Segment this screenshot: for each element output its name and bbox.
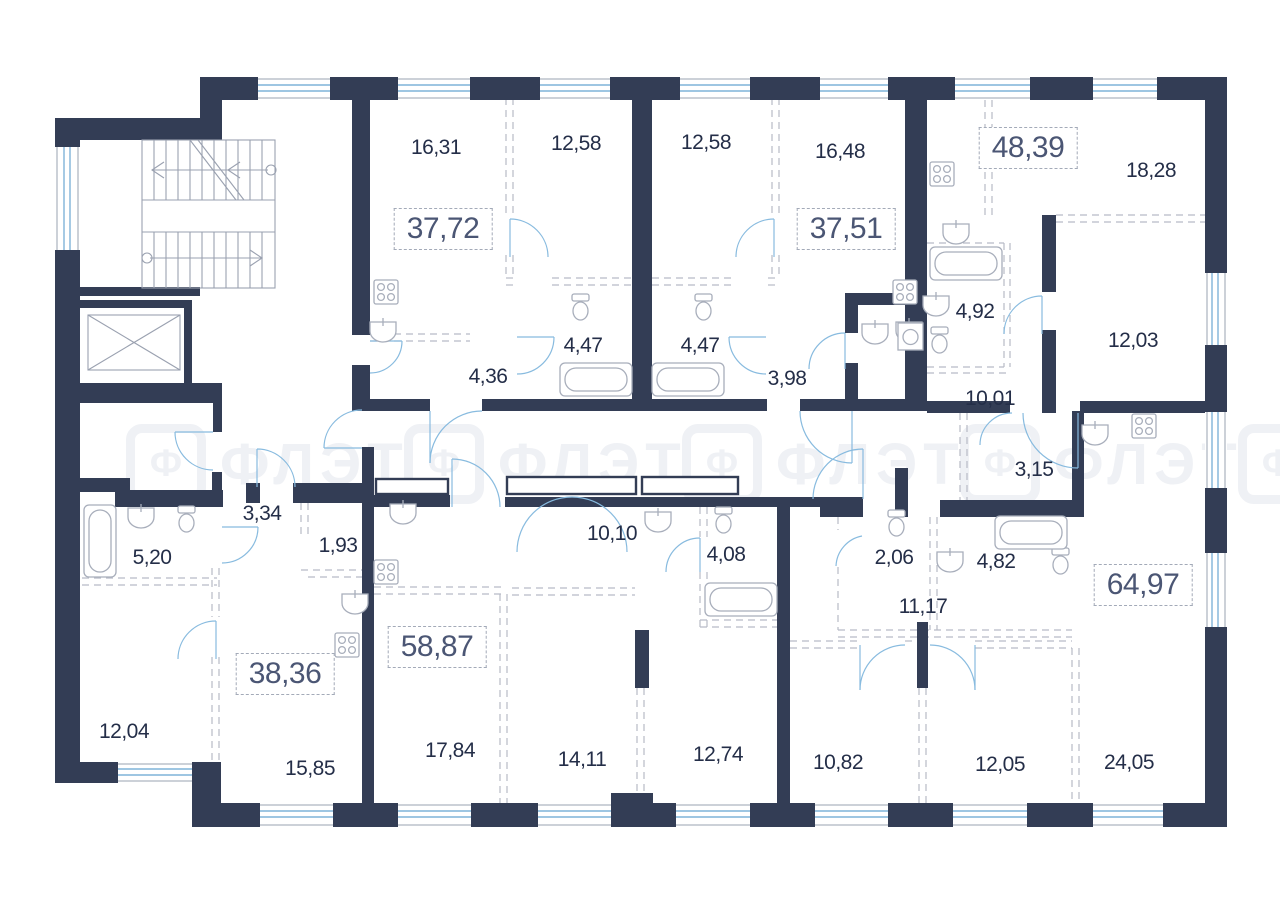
- room-area-label: 17,84: [425, 739, 475, 763]
- window: [260, 803, 333, 827]
- window: [538, 803, 611, 827]
- room-area-label: 10,82: [813, 751, 863, 775]
- window: [1093, 803, 1163, 827]
- room-area-label: 4,82: [977, 550, 1016, 574]
- apartment-total-label: 37,51: [797, 208, 896, 250]
- window: [815, 803, 888, 827]
- window: [55, 147, 80, 250]
- sink-icon: [937, 548, 963, 572]
- stove-icon: [893, 280, 917, 304]
- bathtub-icon: [705, 583, 777, 616]
- room-area-label: 16,48: [815, 140, 865, 164]
- room-area-label: 1,93: [319, 534, 358, 558]
- toilet-icon: [178, 506, 195, 532]
- bathtub-icon: [84, 505, 116, 577]
- window: [676, 803, 750, 827]
- room-area-label: 15,85: [285, 757, 335, 781]
- sink-icon: [370, 318, 396, 342]
- washing-machine-icon: [898, 323, 923, 350]
- window: [1093, 77, 1157, 100]
- apartment-total-label: 48,39: [979, 127, 1078, 169]
- room-area-label: 4,36: [469, 365, 508, 389]
- room-area-label: 12,05: [975, 753, 1025, 777]
- window: [1205, 273, 1227, 345]
- room-area-label: 14,11: [558, 748, 607, 772]
- room-area-label: 3,98: [768, 367, 807, 391]
- room-area-label: 4,47: [681, 334, 720, 358]
- room-area-label: 16,31: [411, 136, 461, 160]
- toilet-icon: [715, 507, 732, 533]
- plan-graphics: [0, 0, 1280, 905]
- window: [953, 803, 1027, 827]
- bathtub-icon: [930, 247, 1002, 280]
- sink-icon: [923, 292, 949, 316]
- sink-icon: [390, 500, 416, 524]
- stove-icon: [930, 162, 954, 186]
- room-area-label: 2,06: [875, 546, 914, 570]
- window: [1205, 553, 1227, 627]
- room-area-label: 4,08: [707, 543, 746, 567]
- bathtub-icon: [560, 363, 632, 396]
- toilet-icon: [695, 294, 712, 320]
- toilet-icon: [888, 510, 905, 536]
- sink-icon: [862, 320, 888, 344]
- stove-icon: [374, 280, 398, 304]
- window: [258, 77, 330, 100]
- bathtub-icon: [995, 516, 1067, 549]
- room-area-label: 18,28: [1126, 159, 1176, 183]
- stove-icon: [374, 560, 398, 584]
- stairs-icon: [142, 140, 276, 288]
- sink-icon: [1082, 421, 1108, 445]
- room-area-label: 24,05: [1104, 751, 1154, 775]
- window: [820, 77, 888, 100]
- sink-icon: [342, 590, 368, 614]
- room-area-label: 10,10: [587, 522, 637, 546]
- room-area-label: 10,01: [965, 387, 1015, 411]
- window: [1205, 412, 1227, 488]
- door-arcs: [175, 219, 1078, 690]
- window: [118, 762, 192, 783]
- sink-icon: [645, 508, 671, 532]
- floor-plan: Ф ФЛЭТ Ф ФЛЭТ Ф ФЛЭТ Ф ФЛЭТ Ф ФЛЭТ: [0, 0, 1280, 905]
- room-area-label: 12,04: [99, 720, 149, 744]
- apartment-total-label: 64,97: [1094, 564, 1193, 606]
- sink-icon: [943, 220, 969, 244]
- room-area-label: 3,34: [243, 502, 282, 526]
- apartment-total-label: 37,72: [394, 208, 493, 250]
- room-area-label: 5,20: [133, 546, 172, 570]
- window: [398, 803, 471, 827]
- window: [398, 77, 470, 100]
- toilet-icon: [931, 327, 948, 353]
- window: [955, 77, 1030, 100]
- room-area-label: 4,47: [564, 334, 603, 358]
- room-area-label: 11,17: [899, 595, 948, 619]
- room-area-label: 12,58: [681, 131, 731, 155]
- apartment-total-label: 38,36: [236, 653, 335, 695]
- stove-icon: [335, 633, 359, 657]
- room-area-label: 12,03: [1108, 329, 1158, 353]
- room-area-label: 4,92: [956, 300, 995, 324]
- sink-icon: [128, 504, 154, 528]
- toilet-icon: [572, 294, 589, 320]
- room-area-label: 12,58: [551, 132, 601, 156]
- stove-icon: [1132, 414, 1156, 438]
- apartment-total-label: 58,87: [388, 626, 487, 668]
- toilet-icon: [1052, 548, 1069, 574]
- walls: [55, 77, 1227, 827]
- room-area-label: 12,74: [693, 743, 743, 767]
- window: [680, 77, 750, 100]
- bathtub-icon: [652, 363, 724, 396]
- wardrobe: [376, 477, 738, 494]
- room-area-label: 3,15: [1015, 458, 1054, 482]
- elevator-icon: [88, 315, 180, 370]
- window: [540, 77, 610, 100]
